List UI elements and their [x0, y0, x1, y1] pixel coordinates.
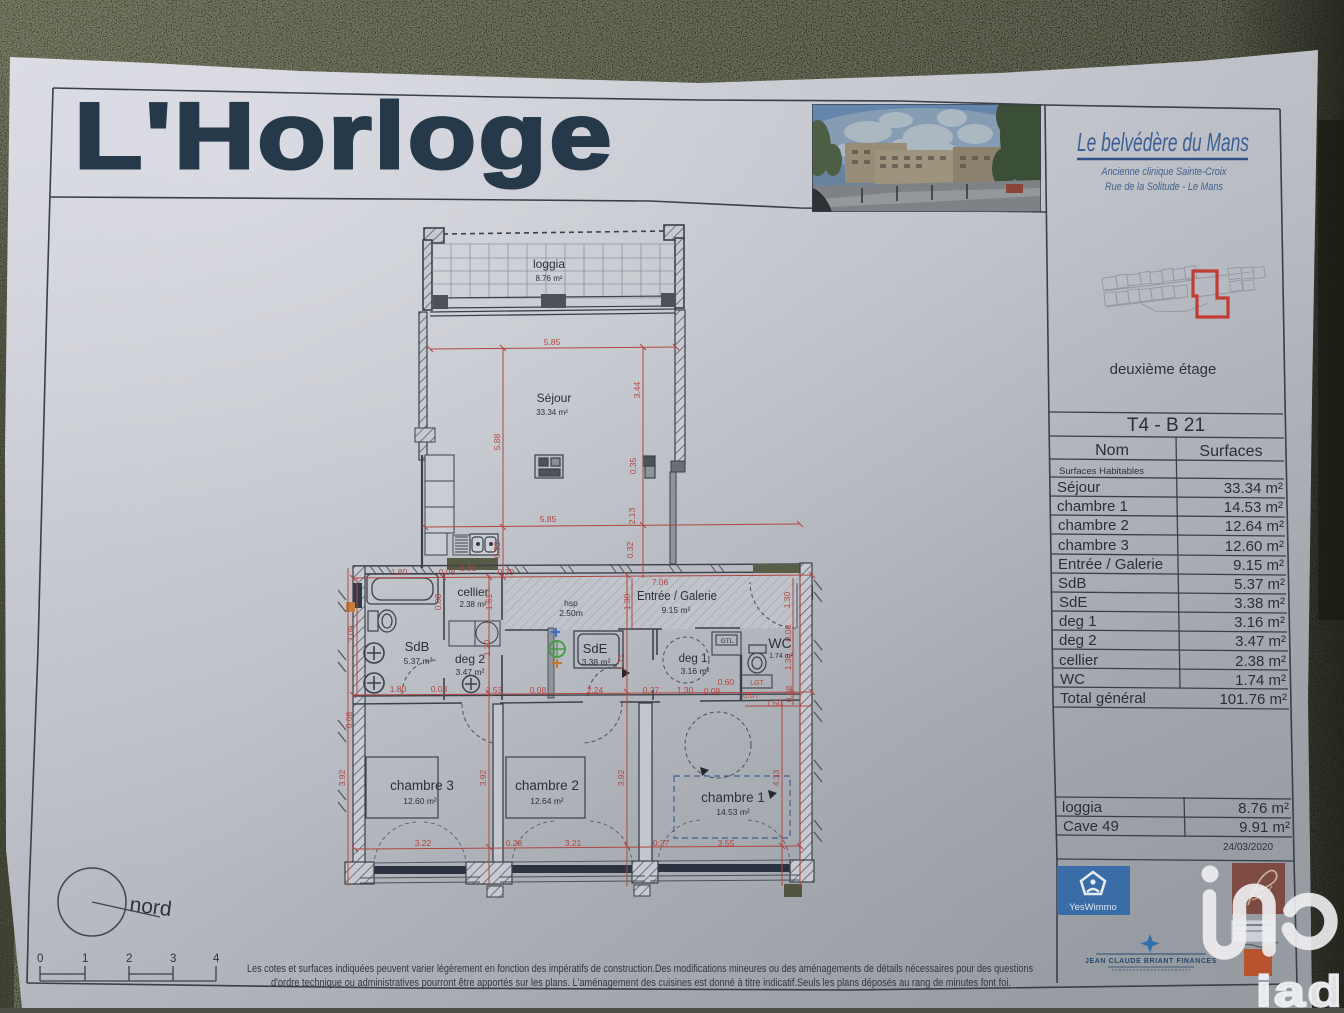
svg-text:8.76 m²: 8.76 m²	[535, 274, 562, 283]
svg-text:3.92: 3.92	[478, 769, 488, 786]
svg-text:3.38 m²: 3.38 m²	[1234, 595, 1285, 612]
svg-text:deg 2: deg 2	[455, 652, 485, 666]
svg-text:1.74 m²: 1.74 m²	[1235, 672, 1286, 689]
svg-text:iad: iad	[1256, 967, 1344, 1008]
svg-text:Surfaces Habitables: Surfaces Habitables	[1059, 466, 1144, 477]
svg-text:3.16 m²: 3.16 m²	[681, 666, 710, 676]
svg-text:4: 4	[213, 953, 220, 965]
svg-text:0.29: 0.29	[498, 567, 515, 577]
svg-text:Séjour: Séjour	[1057, 479, 1100, 496]
svg-text:5.88: 5.88	[492, 433, 502, 450]
svg-text:3.38 m²: 3.38 m²	[582, 657, 611, 667]
svg-text:3.44: 3.44	[632, 381, 642, 398]
svg-text:1.20: 1.20	[482, 639, 492, 656]
svg-text:1.30: 1.30	[622, 593, 632, 610]
svg-text:12.64 m²: 12.64 m²	[1225, 518, 1284, 535]
svg-text:d'ordre technique ou administr: d'ordre technique ou administratives pou…	[271, 977, 1011, 989]
svg-text:5.37 m²: 5.37 m²	[1234, 576, 1285, 593]
svg-text:loggia: loggia	[533, 257, 565, 271]
svg-text:3.16 m²: 3.16 m²	[1234, 614, 1285, 631]
svg-text:3.22: 3.22	[415, 838, 432, 848]
svg-text:2.53: 2.53	[486, 685, 503, 695]
svg-text:1: 1	[82, 953, 88, 965]
svg-text:Surfaces: Surfaces	[1199, 443, 1262, 460]
svg-text:SdB: SdB	[1058, 575, 1086, 592]
svg-text:GTL: GTL	[721, 638, 734, 645]
svg-text:0.60: 0.60	[718, 677, 735, 687]
svg-text:2.50m: 2.50m	[559, 608, 583, 618]
svg-text:0.35: 0.35	[628, 457, 638, 474]
svg-text:1.31: 1.31	[460, 563, 477, 573]
svg-text:9.91 m²: 9.91 m²	[1239, 819, 1290, 836]
svg-text:0.28: 0.28	[506, 838, 523, 848]
svg-text:3.92: 3.92	[337, 769, 347, 786]
svg-text:9.15 m²: 9.15 m²	[1233, 557, 1284, 574]
svg-text:14.53 m²: 14.53 m²	[1224, 499, 1283, 516]
svg-text:deuxième étage: deuxième étage	[1110, 361, 1217, 378]
svg-text:8.76 m²: 8.76 m²	[1238, 800, 1289, 817]
svg-text:4.33: 4.33	[771, 769, 781, 786]
svg-text:chambre 1: chambre 1	[1057, 498, 1128, 515]
svg-text:0.08: 0.08	[783, 624, 793, 641]
svg-text:L'Horloge: L'Horloge	[74, 83, 614, 188]
svg-text:Rue de la Solitude - Le Mans: Rue de la Solitude - Le Mans	[1105, 181, 1223, 193]
svg-text:Séjour: Séjour	[537, 391, 572, 405]
svg-text:33.34 m²: 33.34 m²	[1224, 480, 1283, 497]
svg-text:0.32: 0.32	[492, 541, 502, 558]
svg-text:1.30: 1.30	[677, 685, 694, 695]
svg-text:1.71: 1.71	[616, 653, 626, 670]
svg-text:Cave 49: Cave 49	[1063, 818, 1119, 835]
svg-text:T4 - B 21: T4 - B 21	[1127, 415, 1205, 436]
svg-text:1.30: 1.30	[782, 591, 792, 608]
svg-text:7.06: 7.06	[652, 577, 669, 587]
svg-text:0.08: 0.08	[433, 593, 443, 610]
svg-text:loggia: loggia	[1062, 799, 1103, 816]
svg-text:14.53 m²: 14.53 m²	[716, 807, 750, 817]
svg-text:1.50: 1.50	[766, 698, 783, 708]
svg-text:1.80: 1.80	[391, 567, 408, 577]
svg-text:33.34 m²: 33.34 m²	[536, 408, 568, 417]
svg-text:0.08: 0.08	[530, 685, 547, 695]
svg-text:deg 2: deg 2	[1059, 632, 1097, 649]
svg-text:3.55: 3.55	[718, 838, 735, 848]
svg-text:chambre 3: chambre 3	[1058, 537, 1129, 554]
svg-text:3.09: 3.09	[346, 625, 356, 642]
svg-text:YesWimmo: YesWimmo	[1069, 902, 1117, 913]
svg-text:2: 2	[126, 953, 132, 965]
svg-text:3.21: 3.21	[565, 838, 582, 848]
svg-text:3.47 m²: 3.47 m²	[1235, 633, 1286, 650]
svg-text:chambre 2: chambre 2	[1058, 517, 1129, 534]
svg-text:Entrée / Galerie: Entrée / Galerie	[1058, 556, 1163, 573]
svg-text:12.60 m²: 12.60 m²	[1225, 538, 1284, 555]
svg-text:WC: WC	[1060, 671, 1085, 688]
svg-text:Nom: Nom	[1095, 442, 1129, 459]
svg-text:3.47 m²: 3.47 m²	[456, 667, 485, 677]
svg-text:5.85: 5.85	[540, 514, 557, 524]
svg-text:hsp: hsp	[564, 598, 578, 608]
svg-text:chambre 2: chambre 2	[515, 778, 579, 793]
svg-text:SdE: SdE	[583, 641, 608, 656]
svg-text:2.38 m²: 2.38 m²	[459, 600, 486, 609]
svg-text:0.08: 0.08	[784, 685, 794, 702]
svg-text:Le belvédère du Mans: Le belvédère du Mans	[1077, 127, 1249, 157]
svg-text:SdE: SdE	[1059, 594, 1087, 611]
svg-text:3.92: 3.92	[616, 769, 626, 786]
svg-text:Total général: Total général	[1060, 690, 1146, 707]
svg-text:0.27: 0.27	[653, 838, 670, 848]
svg-text:SdB: SdB	[405, 639, 430, 654]
svg-text:12.64 m²: 12.64 m²	[530, 796, 564, 806]
svg-text:12.60 m²: 12.60 m²	[403, 796, 437, 806]
svg-text:0.27: 0.27	[643, 685, 660, 695]
svg-text:1.80: 1.80	[390, 684, 407, 694]
svg-text:chambre 3: chambre 3	[390, 778, 454, 793]
svg-text:LGT: LGT	[750, 680, 764, 687]
svg-text:24/03/2020: 24/03/2020	[1223, 842, 1273, 853]
svg-text:chambre 1: chambre 1	[701, 790, 765, 805]
svg-text:0.08: 0.08	[431, 684, 448, 694]
svg-text:2.38 m²: 2.38 m²	[1235, 653, 1286, 670]
svg-text:5.85: 5.85	[544, 337, 561, 347]
svg-text:deg 1: deg 1	[1059, 613, 1097, 630]
svg-text:0.32: 0.32	[625, 541, 635, 558]
svg-text:0: 0	[37, 953, 43, 965]
svg-text:Les cotes et surfaces indiquée: Les cotes et surfaces indiquées peuvent …	[247, 963, 1033, 975]
svg-text:101.76 m²: 101.76 m²	[1219, 691, 1287, 708]
svg-text:deg 1: deg 1	[679, 653, 708, 665]
svg-text:9.15 m²: 9.15 m²	[662, 605, 691, 615]
svg-text:0.07: 0.07	[743, 690, 760, 700]
svg-text:2.13: 2.13	[627, 507, 637, 524]
svg-text:0.08: 0.08	[704, 686, 721, 696]
svg-text:2.24: 2.24	[587, 685, 604, 695]
svg-text:0.08: 0.08	[344, 711, 354, 728]
svg-text:Entrée / Galerie: Entrée / Galerie	[637, 589, 717, 603]
svg-text:Ancienne clinique Sainte-Croix: Ancienne clinique Sainte-Croix	[1101, 166, 1227, 178]
svg-text:1.61: 1.61	[484, 593, 494, 610]
svg-text:1.30: 1.30	[783, 653, 793, 670]
svg-text:3: 3	[170, 953, 176, 965]
svg-text:JEAN CLAUDE BRIANT FINANCES: JEAN CLAUDE BRIANT FINANCES	[1085, 958, 1217, 965]
svg-text:cellier: cellier	[1059, 652, 1098, 669]
